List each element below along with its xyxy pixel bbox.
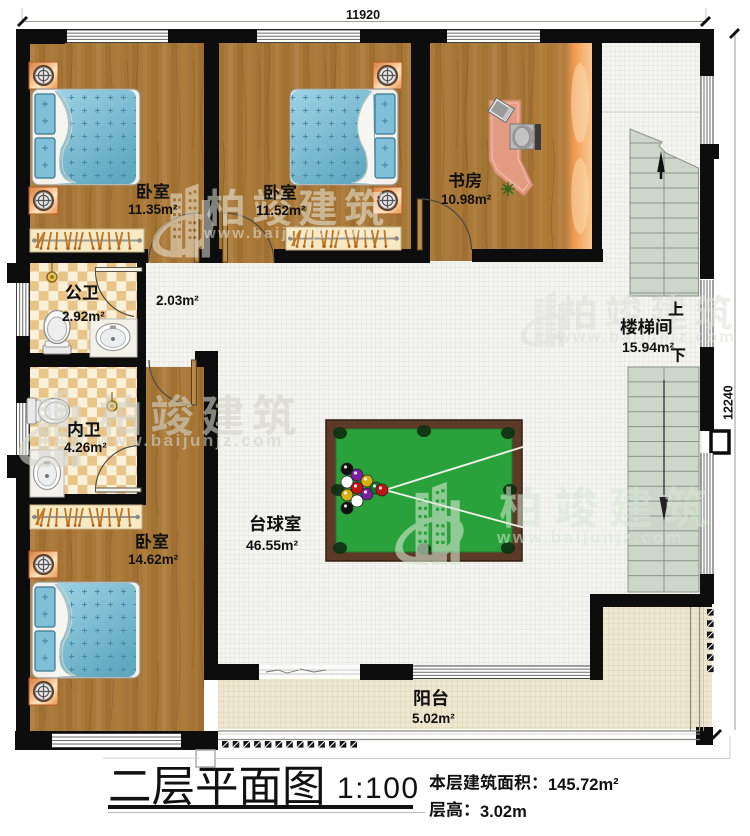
svg-text:www.baijunjz.com: www.baijunjz.com [496, 528, 684, 547]
svg-text:46.55m²: 46.55m² [246, 537, 298, 553]
svg-text:10.98m²: 10.98m² [441, 192, 492, 207]
svg-text:12240: 12240 [722, 385, 736, 420]
svg-text:www.baijunjz.com: www.baijunjz.com [203, 225, 373, 242]
svg-text:2.03m²: 2.03m² [156, 293, 199, 308]
svg-text:www.baijunjz.com: www.baijunjz.com [96, 431, 284, 450]
svg-text:3.02m: 3.02m [480, 803, 527, 821]
svg-text:11.35m²: 11.35m² [128, 202, 178, 217]
svg-text:2.92m²: 2.92m² [62, 309, 105, 324]
svg-text:11.52m²: 11.52m² [256, 203, 306, 218]
svg-text:4.26m²: 4.26m² [64, 440, 107, 455]
svg-text:145.72m²: 145.72m² [548, 776, 619, 794]
svg-text:14.62m²: 14.62m² [128, 552, 179, 567]
svg-text:11920: 11920 [346, 8, 380, 22]
svg-text:5.02m²: 5.02m² [412, 711, 455, 726]
svg-text:1:100: 1:100 [337, 772, 420, 805]
svg-text:15.94m²: 15.94m² [622, 339, 674, 355]
